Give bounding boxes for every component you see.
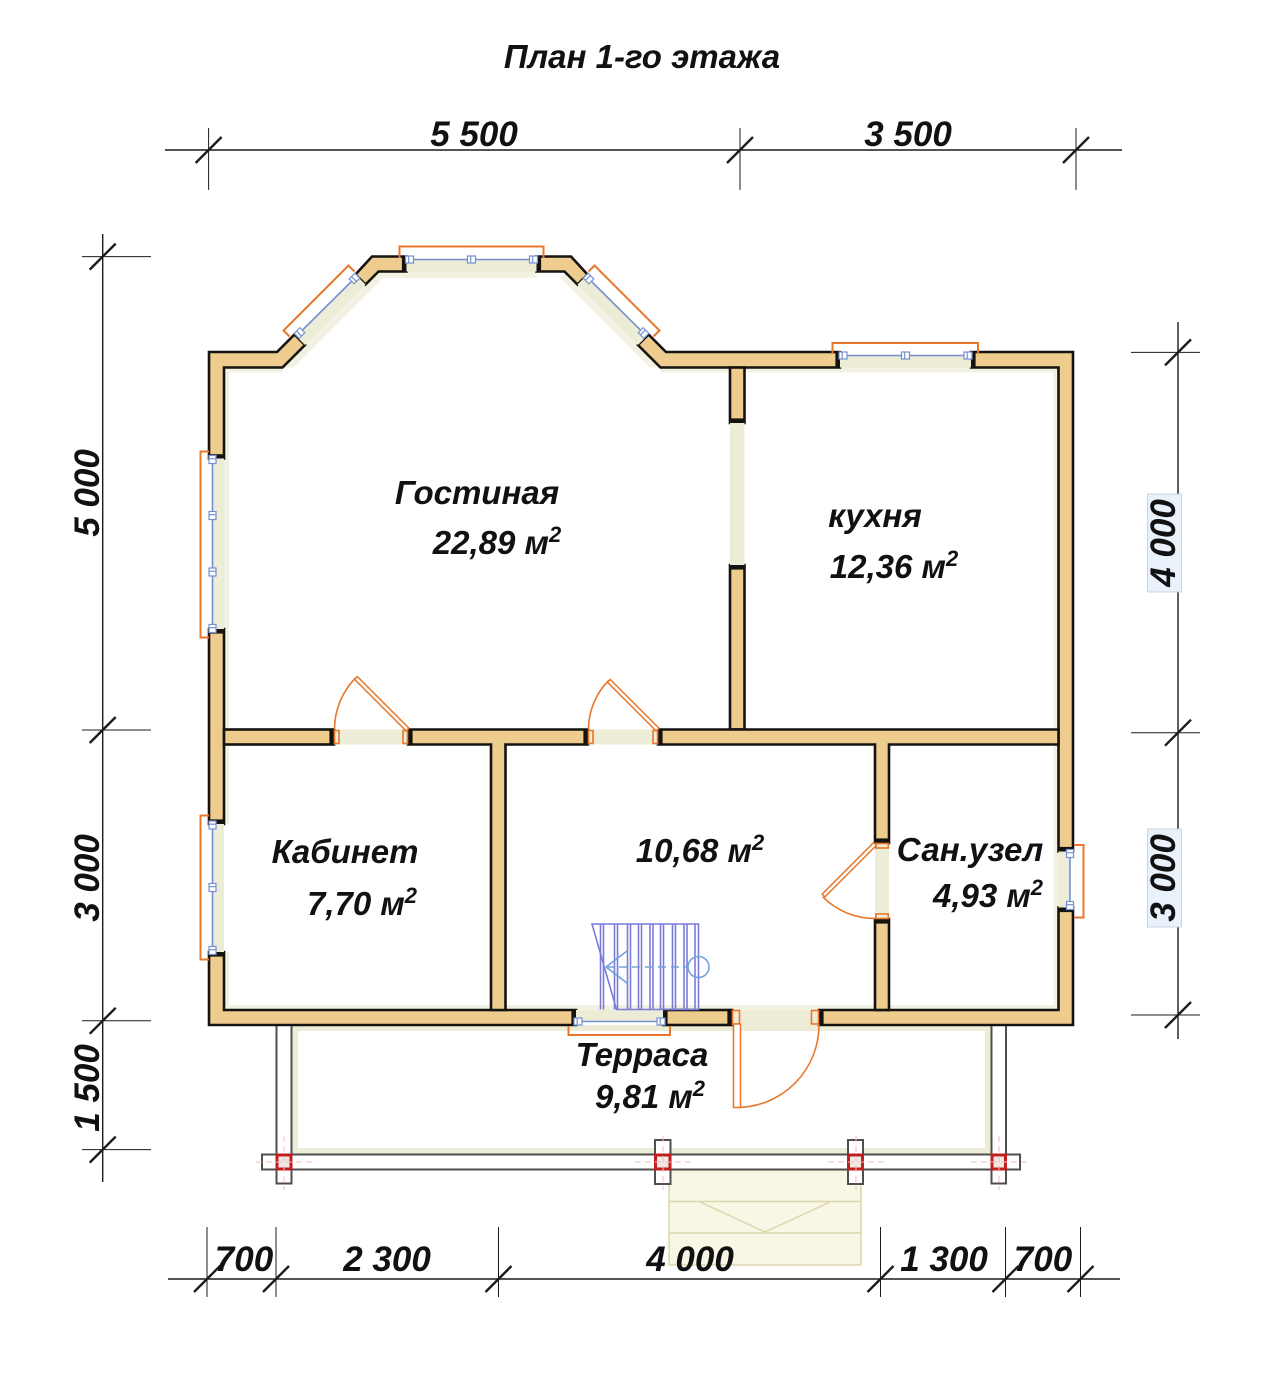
svg-text:3 000: 3 000	[68, 834, 107, 922]
svg-text:2 300: 2 300	[342, 1240, 431, 1279]
svg-text:12,36 м2: 12,36 м2	[830, 546, 959, 585]
svg-text:700: 700	[1014, 1240, 1073, 1279]
svg-text:7,70 м2: 7,70 м2	[307, 883, 418, 922]
svg-text:1 500: 1 500	[68, 1044, 107, 1132]
svg-text:9,81 м2: 9,81 м2	[595, 1076, 706, 1115]
svg-text:10,68 м2: 10,68 м2	[636, 830, 765, 869]
svg-text:кухня: кухня	[828, 497, 922, 534]
svg-text:1 300: 1 300	[900, 1240, 988, 1279]
svg-text:Гостиная: Гостиная	[395, 474, 559, 511]
svg-text:3 500: 3 500	[864, 115, 952, 154]
svg-text:5 000: 5 000	[68, 449, 107, 537]
svg-text:4 000: 4 000	[1144, 499, 1183, 588]
svg-text:Сан.узел: Сан.узел	[897, 831, 1044, 868]
svg-text:5 500: 5 500	[430, 115, 518, 154]
svg-text:4,93 м2: 4,93 м2	[932, 875, 1044, 914]
svg-text:4 000: 4 000	[645, 1240, 734, 1279]
svg-text:22,89 м2: 22,89 м2	[432, 522, 562, 561]
svg-text:Кабинет: Кабинет	[272, 833, 419, 870]
svg-text:3 000: 3 000	[1144, 834, 1183, 922]
svg-text:700: 700	[215, 1240, 274, 1279]
svg-text:План 1-го этажа: План 1-го этажа	[504, 38, 780, 75]
svg-text:Терраса: Терраса	[576, 1036, 709, 1073]
